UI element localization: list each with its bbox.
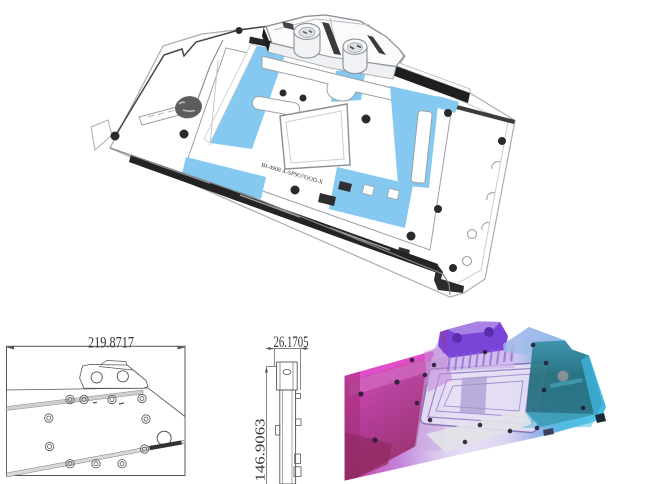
svg-text:219.8717: 219.8717 — [88, 335, 134, 352]
svg-text:146.9063: 146.9063 — [253, 418, 268, 481]
